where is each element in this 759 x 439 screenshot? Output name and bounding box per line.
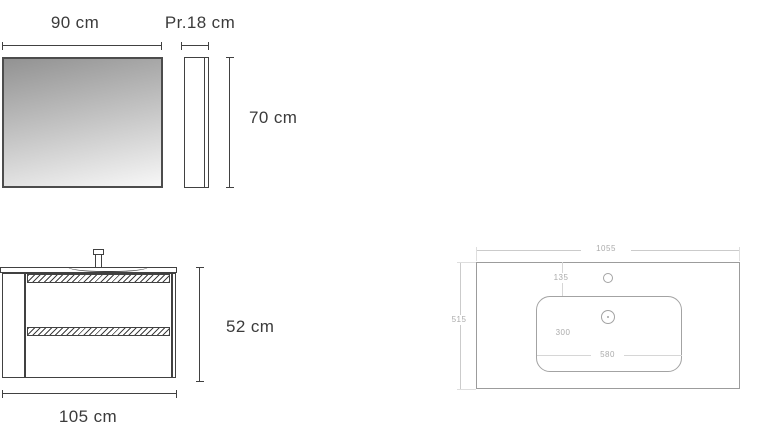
mirror-height-label: 70 cm	[249, 108, 297, 128]
dimension-tick	[2, 42, 3, 50]
dimension-tick	[226, 187, 234, 188]
basin-width-label: 580	[591, 350, 624, 360]
extension-line	[476, 247, 477, 261]
extension-line	[457, 389, 476, 390]
drawer-handle-hatch-bottom	[27, 327, 170, 336]
vanity-right-edge	[172, 273, 176, 378]
mirror-width-dimension-line	[2, 45, 162, 46]
vanity-height-label: 52 cm	[226, 317, 274, 337]
vanity-height-dimension-line	[199, 267, 200, 381]
extension-line	[739, 247, 740, 261]
sink-width-label: 1055	[581, 244, 631, 254]
vanity-front-face	[25, 273, 172, 378]
dimension-tick	[176, 390, 177, 398]
mirror-side-inner-line	[204, 58, 205, 187]
sink-depth-label: 515	[444, 315, 474, 325]
mirror-front-view	[2, 57, 163, 188]
dimension-tick	[181, 42, 182, 50]
mirror-height-dimension-line	[229, 57, 230, 188]
vanity-left-side-panel	[2, 273, 25, 378]
vanity-width-label: 105 cm	[43, 407, 133, 427]
faucet-hole	[603, 273, 613, 283]
mirror-depth-label: Pr.18 cm	[155, 13, 245, 33]
drain-center-dot	[607, 316, 609, 318]
dimension-tick	[208, 42, 209, 50]
vanity-width-dimension-line	[2, 393, 177, 394]
faucet-offset-label: 135	[545, 273, 577, 283]
basin-depth-label: 300	[547, 328, 579, 338]
sink-depth-dimension-line	[460, 262, 461, 390]
dimension-tick	[226, 57, 234, 58]
faucet-body	[95, 254, 102, 268]
mirror-depth-dimension-line	[181, 45, 209, 46]
dimension-tick	[161, 42, 162, 50]
extension-line	[457, 262, 476, 263]
furniture-dimension-diagram: 90 cm Pr.18 cm 70 cm	[0, 0, 759, 439]
dimension-tick	[2, 390, 3, 398]
mirror-side-view	[184, 57, 209, 188]
drawer-handle-hatch-top	[27, 274, 170, 283]
dimension-tick	[196, 381, 204, 382]
dimension-tick	[196, 267, 204, 268]
mirror-width-label: 90 cm	[30, 13, 120, 33]
